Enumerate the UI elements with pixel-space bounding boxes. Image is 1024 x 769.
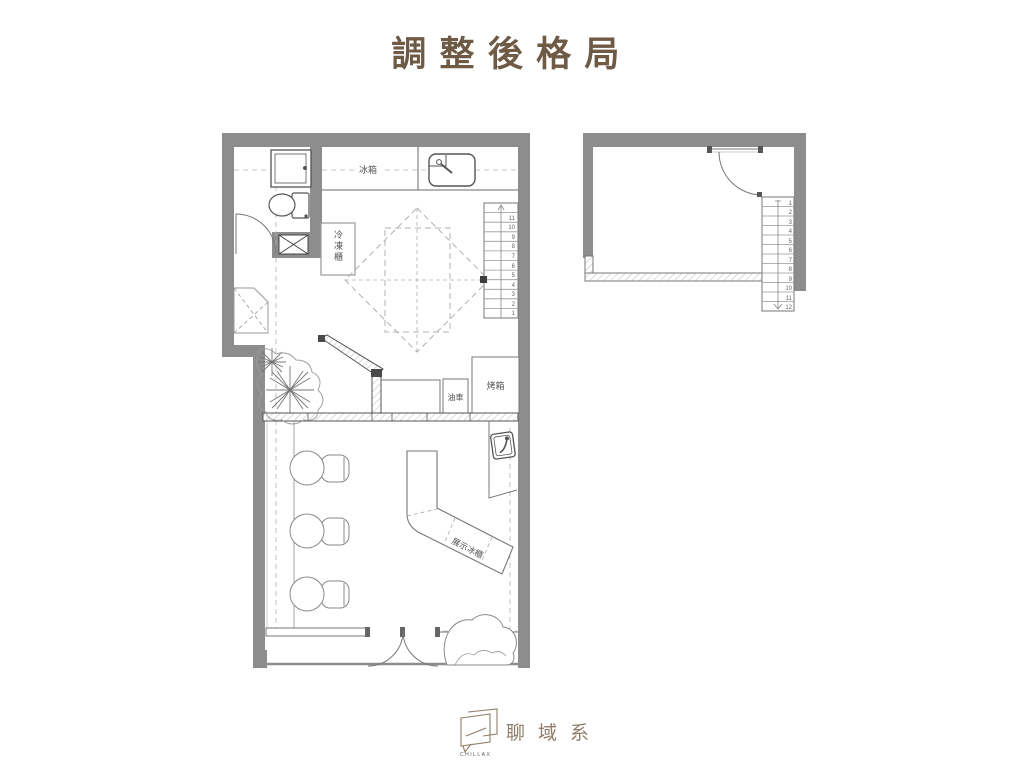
- page-title: 調整後格局: [0, 26, 1024, 77]
- stairs-main: 1 2 3 4 5 6 7 8 9 10 11: [480, 203, 518, 318]
- dining-table: [345, 208, 489, 352]
- stool-seat-back: [290, 577, 349, 611]
- floorplan-drawing: 冰箱: [0, 0, 1024, 769]
- stair-marker: [480, 276, 487, 283]
- bathroom: [236, 150, 311, 254]
- freezer-label: 冷凍櫃: [332, 230, 345, 263]
- kitchen-sink-icon: [429, 154, 475, 186]
- shaft-box: [279, 235, 308, 254]
- hatched-low-wall: [263, 413, 518, 421]
- stool-seat-back: [290, 451, 349, 485]
- window-sill: [266, 628, 368, 636]
- oven-label: 烤箱: [486, 380, 504, 391]
- toilet-icon: [269, 193, 309, 218]
- fridge-label: 冰箱: [359, 164, 377, 175]
- upper-entry-door: [707, 146, 763, 197]
- cart-label: 油車: [448, 392, 464, 402]
- main-floor-plan: 冰箱: [222, 133, 530, 668]
- chillax-logo-icon: [461, 709, 497, 752]
- logo-en-label: CHILLAX: [460, 752, 491, 758]
- prep-sink-icon: [490, 432, 515, 460]
- bathroom-door: [236, 214, 276, 254]
- entry-bush: [444, 615, 516, 665]
- logo: CHILLAX: [460, 709, 497, 758]
- wall-niche: [234, 288, 268, 333]
- shopfront: [253, 615, 530, 666]
- svg-text:10: 10: [508, 225, 515, 231]
- svg-text:12: 12: [785, 305, 792, 311]
- washbasin-icon: [271, 150, 311, 187]
- display-counter: 展示冰櫃: [407, 451, 513, 574]
- upper-floor-plan: 1 2 3 4 5 6 7 8 9 10 11 12: [583, 133, 806, 311]
- svg-text:11: 11: [786, 296, 793, 302]
- stools: [290, 451, 349, 611]
- fridge-counter: [322, 147, 518, 190]
- diagonal-partition: [318, 335, 383, 417]
- floorplan-page: 冰箱: [0, 0, 1024, 769]
- logo-cn-label: 聊域系: [506, 718, 602, 745]
- stool-seat-back: [290, 514, 349, 548]
- svg-text:11: 11: [509, 216, 516, 222]
- thin-wall-bottom: [585, 273, 762, 281]
- svg-text:10: 10: [785, 286, 792, 292]
- stairs-upper: 1 2 3 4 5 6 7 8 9 10 11 12: [762, 197, 794, 311]
- double-door: [365, 627, 440, 666]
